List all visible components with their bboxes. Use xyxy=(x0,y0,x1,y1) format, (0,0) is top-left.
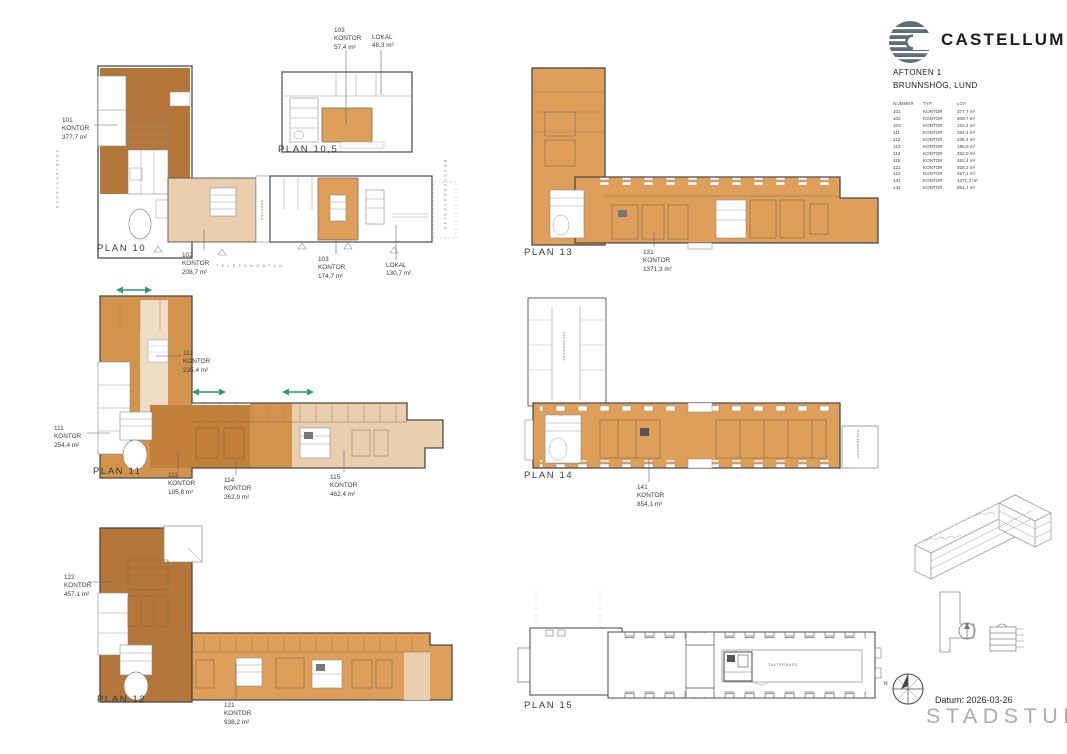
unit-label-lokal-plan105: LOKAL48,3 m² xyxy=(372,34,394,51)
unit-label-112: 112KONTOR235,4 m² xyxy=(183,350,210,375)
plan-15-drawing xyxy=(518,590,881,698)
plan-14-title: PLAN 14 xyxy=(524,470,573,481)
unit-label-103-plan105: 103KONTOR57,4 m² xyxy=(334,27,361,52)
project-title-block: AFTONEN 1 BRUNNSHÖG, LUND xyxy=(893,66,978,92)
table-row: 101KONTOR377,7 m² xyxy=(893,109,1001,116)
plan-11-title: PLAN 11 xyxy=(93,466,142,477)
plan-10-5-drawing xyxy=(282,72,412,152)
brand-wordmark: CASTELLUM xyxy=(941,30,1066,50)
unit-label-141: 141KONTOR854,1 m² xyxy=(637,484,664,509)
area-table: NUMMER TYP LOA 101KONTOR377,7 m²102KONTO… xyxy=(893,101,1001,192)
unit-label-121: 121KONTOR938,2 m² xyxy=(224,702,251,727)
site-key-plan xyxy=(940,592,975,652)
plan-10-5-title: PLAN 10,5 xyxy=(278,144,338,155)
table-row: 102KONTOR208,7 m² xyxy=(893,116,1001,123)
table-row: 103KONTOR232,1 m² xyxy=(893,123,1001,130)
plan-12-drawing xyxy=(98,526,452,702)
table-row: 131KONTOR1371,3 m² xyxy=(893,178,1001,185)
unit-label-122: 122KONTOR457,1 m² xyxy=(64,574,91,599)
unit-label-102: 102KONTOR208,7 m² xyxy=(182,252,209,277)
table-row: 122KONTOR457,1 m² xyxy=(893,171,1001,178)
street-label-right: BRUNNSHÖGSGATAN xyxy=(443,160,447,255)
table-row: 121KONTOR938,2 m² xyxy=(893,165,1001,172)
plan-15-title: PLAN 15 xyxy=(524,700,573,711)
plan-13-drawing xyxy=(532,68,878,249)
table-row: 112KONTOR235,4 m² xyxy=(893,137,1001,144)
roof-terrace-label-plan15: TAKTERRASS xyxy=(768,663,798,667)
unit-label-131: 131KONTOR1371,3 m² xyxy=(643,249,672,274)
table-row: 115KONTOR462,4 m² xyxy=(893,158,1001,165)
plan-14-drawing xyxy=(525,298,878,468)
project-name: AFTONEN 1 xyxy=(893,66,978,79)
unit-label-113: 113KONTOR195,8 m² xyxy=(168,472,195,497)
plan-sheet: CASTELLUM AFTONEN 1 BRUNNSHÖG, LUND NUMM… xyxy=(0,0,1067,754)
street-label-bottom: TELEFONGATAN xyxy=(216,264,285,268)
plan-12-title: PLAN 12 xyxy=(97,694,146,705)
castellum-logo-icon xyxy=(886,21,936,63)
project-location: BRUNNSHÖG, LUND xyxy=(893,79,978,92)
unit-label-114: 114KONTOR262,0 m² xyxy=(224,477,251,502)
table-row: 114KONTOR262,0 m² xyxy=(893,151,1001,158)
roof-terrace-label-tower: TAKTERRASS xyxy=(562,332,566,361)
unit-label-115: 115KONTOR462,4 m² xyxy=(330,474,357,499)
studio-wordmark: STADSTUDIO xyxy=(926,704,1067,729)
table-row: 113KONTOR195,8 m² xyxy=(893,144,1001,151)
street-label-left: SOLBJERSVÄGEN xyxy=(55,150,59,265)
area-table-body: 101KONTOR377,7 m²102KONTOR208,7 m²103KON… xyxy=(893,109,1001,192)
plan-13-title: PLAN 13 xyxy=(524,247,573,258)
axonometric-massing xyxy=(915,495,1051,579)
unit-label-101: 101KONTOR377,7 m² xyxy=(62,117,89,142)
plan-11-drawing xyxy=(98,296,443,478)
roof-terrace-label-bar: TAKTERRASS xyxy=(856,430,860,459)
col-nummer: NUMMER xyxy=(893,101,923,109)
table-row: 111KONTOR254,4 m² xyxy=(893,130,1001,137)
north-label: N xyxy=(884,681,888,687)
unit-label-lokal-plan10: LOKAL130,7 m² xyxy=(386,262,411,279)
col-loa: LOA xyxy=(957,101,1001,109)
compass-icon xyxy=(893,674,923,704)
passage-label: PASSAGE xyxy=(260,200,264,221)
col-typ: TYP xyxy=(923,101,957,109)
table-row: 141KONTOR854,1 m² xyxy=(893,185,1001,192)
unit-label-111: 111KONTOR254,4 m² xyxy=(54,425,81,450)
floor-stack-icon xyxy=(990,624,1024,651)
unit-label-103-plan10: 103KONTOR174,7 m² xyxy=(318,256,345,281)
plan-10-title: PLAN 10 xyxy=(97,243,146,254)
